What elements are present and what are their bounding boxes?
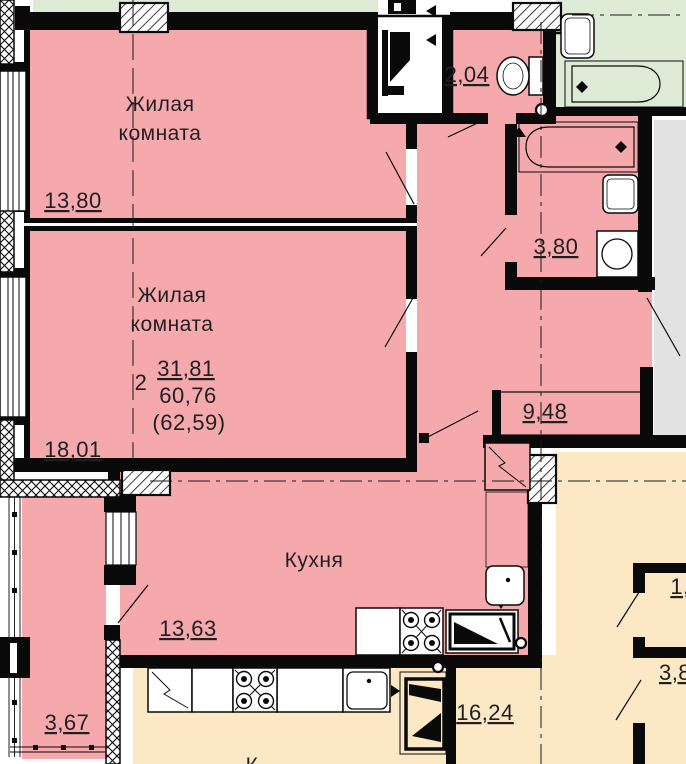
exterior-pier-2 (0, 210, 14, 272)
riser-circle-icon (536, 104, 548, 116)
bathroom-area: 3,80 (534, 234, 579, 259)
balcony-pier-slot (10, 643, 17, 673)
toilet-icon (497, 57, 543, 95)
apartment-type: 2 (135, 370, 148, 395)
pier-kitchen-right (528, 455, 556, 503)
balcony-wall-vertical (106, 640, 120, 764)
neighbor-top-strip (33, 0, 378, 12)
fridge-icon (446, 610, 518, 653)
pier-top-left (120, 3, 168, 32)
window-balcony-kitchen (106, 512, 136, 565)
neighbor-right-area-2: 3,8 (659, 660, 686, 685)
exterior-pier-1 (0, 0, 14, 64)
floor-plan: Жилая комната 13,80 Жилая комната 18,01 … (0, 0, 686, 764)
pier-top-right (513, 3, 561, 30)
room2-name-line2: комната (131, 313, 214, 336)
kitchen-area: 13,63 (159, 616, 217, 641)
hallway-area: 9,48 (523, 399, 568, 424)
stove-icon (400, 608, 443, 655)
pier-kitchen-left (122, 470, 170, 495)
neighbor-bottom-area: 16,24 (456, 700, 514, 725)
room2-area: 18,01 (44, 437, 102, 462)
kitchen-name: Кухня (285, 549, 344, 572)
neighbor-stove-icon (233, 668, 277, 712)
neighbor-right-area-1: 1, (670, 574, 686, 599)
apartment-living-area: 31,81 (157, 356, 215, 381)
floor-plan-drawing: Жилая комната 13,80 Жилая комната 18,01 … (0, 0, 686, 764)
room1-area: 13,80 (44, 188, 102, 213)
wc-door-opening (488, 113, 516, 124)
room2-name-line1: Жилая (138, 284, 207, 307)
room1-name-line2: комната (119, 122, 202, 145)
riser-circle-icon (516, 638, 526, 648)
bath-sink-icon (603, 175, 645, 213)
balcony-wall-band (0, 480, 120, 497)
apartment-total-with-balcony: (62,59) (152, 410, 225, 435)
neighbor-sink2-icon (343, 668, 390, 712)
wc-area: 2,04 (445, 62, 490, 87)
riser-circle-icon (433, 662, 443, 672)
room1-name-line1: Жилая (126, 93, 195, 116)
neighbor-right-room-floor (556, 452, 686, 664)
common-corridor-floor (654, 120, 686, 436)
neighbor-bottom-label: К (246, 754, 259, 764)
apartment-total-area: 60,76 (159, 383, 217, 408)
washing-machine-icon (597, 231, 638, 277)
window-room2 (0, 277, 26, 417)
window-room1 (0, 71, 26, 211)
wall-double-line-gap (24, 223, 417, 226)
kitchen-sink-icon (486, 566, 524, 605)
vent-shaft-box (485, 443, 530, 490)
balcony-area: 3,67 (45, 710, 90, 735)
exterior-pier-3 (0, 420, 14, 482)
utility-shaft (368, 16, 452, 118)
